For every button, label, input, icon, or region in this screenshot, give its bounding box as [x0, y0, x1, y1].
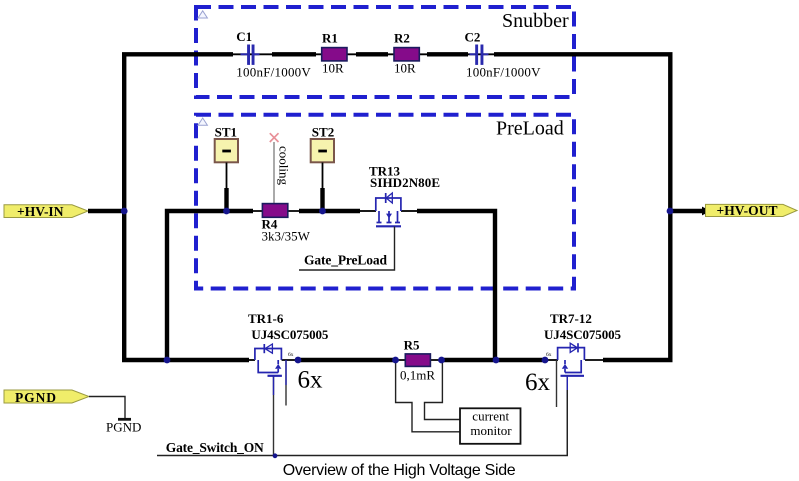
svg-text:UJ4SC075005: UJ4SC075005: [251, 327, 329, 342]
svg-text:3k3/35W: 3k3/35W: [262, 228, 311, 243]
svg-text:Snubber: Snubber: [502, 10, 569, 32]
svg-text:TR1-6: TR1-6: [248, 311, 284, 326]
svg-text:Overview of the High Voltage S: Overview of the High Voltage Side: [283, 462, 516, 479]
svg-text:Gate_PreLoad: Gate_PreLoad: [304, 253, 387, 268]
svg-text:ST2: ST2: [312, 124, 334, 139]
svg-text:C1: C1: [236, 29, 252, 44]
svg-text:PGND: PGND: [106, 420, 141, 435]
svg-text:100nF/1000V: 100nF/1000V: [466, 64, 541, 79]
svg-text:PGND: PGND: [15, 390, 56, 405]
svg-text:R1: R1: [322, 31, 338, 46]
svg-text:100nF/1000V: 100nF/1000V: [236, 64, 311, 79]
svg-text:0,1mR: 0,1mR: [400, 368, 435, 383]
svg-text:6x: 6x: [298, 367, 324, 394]
svg-text:monitor: monitor: [470, 423, 512, 438]
svg-text:current: current: [472, 408, 509, 423]
svg-text:TR7-12: TR7-12: [550, 311, 592, 326]
svg-text:ST1: ST1: [215, 124, 237, 139]
svg-text:10R: 10R: [322, 60, 344, 75]
svg-text:+HV-IN: +HV-IN: [17, 204, 64, 219]
svg-text:6x: 6x: [525, 369, 551, 396]
svg-text:SIHD2N80E: SIHD2N80E: [370, 175, 440, 190]
svg-text:6x: 6x: [288, 352, 294, 358]
svg-text:Gate_Switch_ON: Gate_Switch_ON: [166, 440, 264, 455]
svg-text:R5: R5: [404, 338, 420, 353]
svg-text:10R: 10R: [394, 60, 416, 75]
svg-text:C2: C2: [465, 30, 481, 45]
svg-text:6x: 6x: [546, 352, 552, 358]
svg-text:cooling: cooling: [277, 146, 292, 185]
svg-text:UJ4SC075005: UJ4SC075005: [544, 327, 622, 342]
svg-text:R2: R2: [394, 31, 410, 46]
svg-text:PreLoad: PreLoad: [496, 118, 564, 140]
svg-text:+HV-OUT: +HV-OUT: [717, 203, 778, 218]
